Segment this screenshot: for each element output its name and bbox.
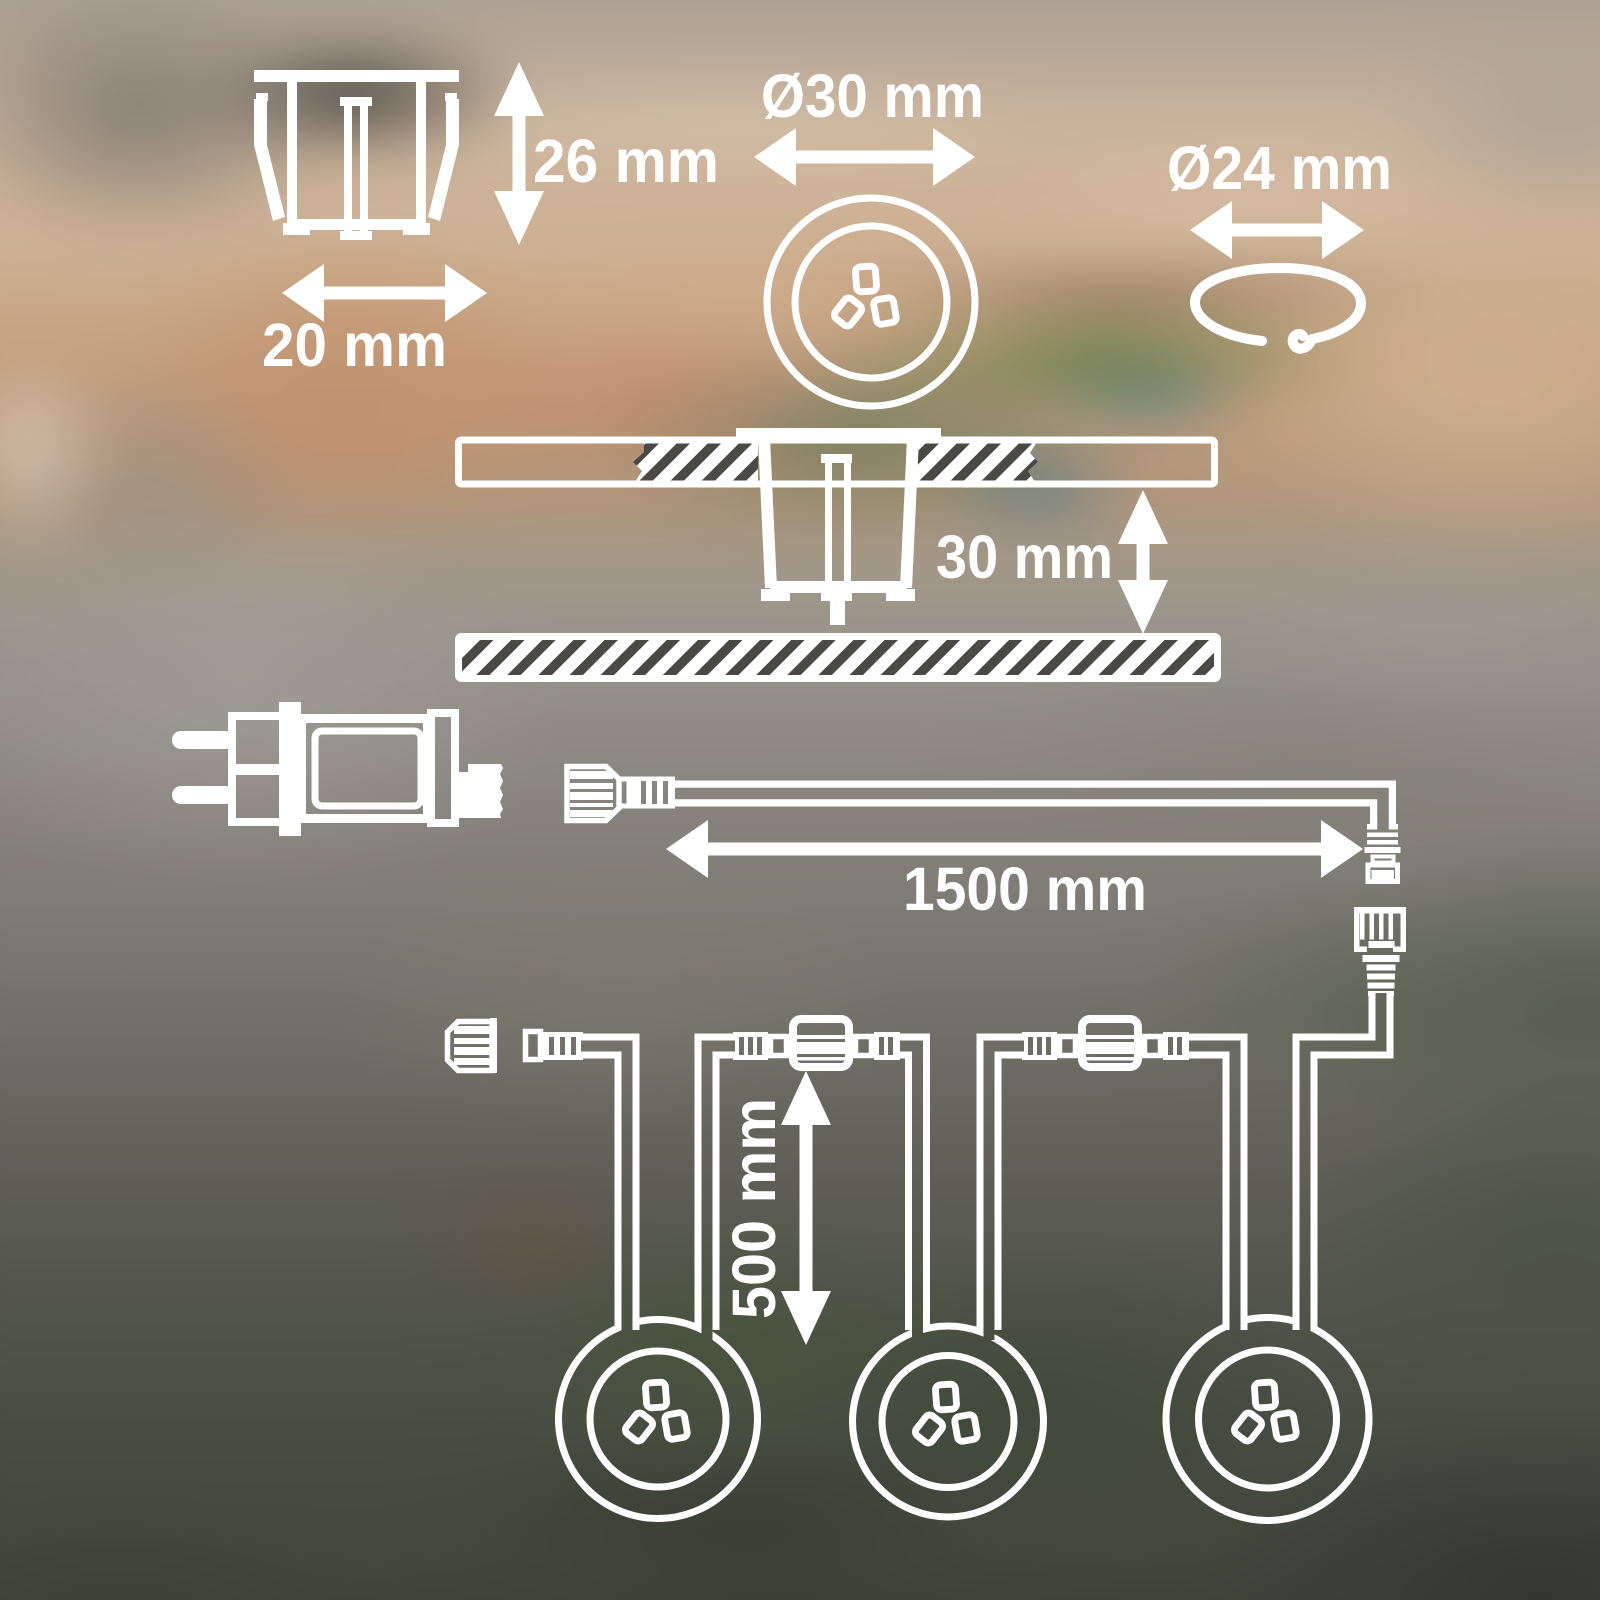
svg-text:1500 mm: 1500 mm [903,855,1147,923]
svg-text:20 mm: 20 mm [262,311,447,379]
svg-text:Ø24 mm: Ø24 mm [1167,134,1392,202]
svg-text:30 mm: 30 mm [936,523,1113,591]
svg-text:Ø30 mm: Ø30 mm [761,62,984,130]
svg-text:26 mm: 26 mm [533,127,719,195]
svg-text:500 mm: 500 mm [720,1098,788,1319]
